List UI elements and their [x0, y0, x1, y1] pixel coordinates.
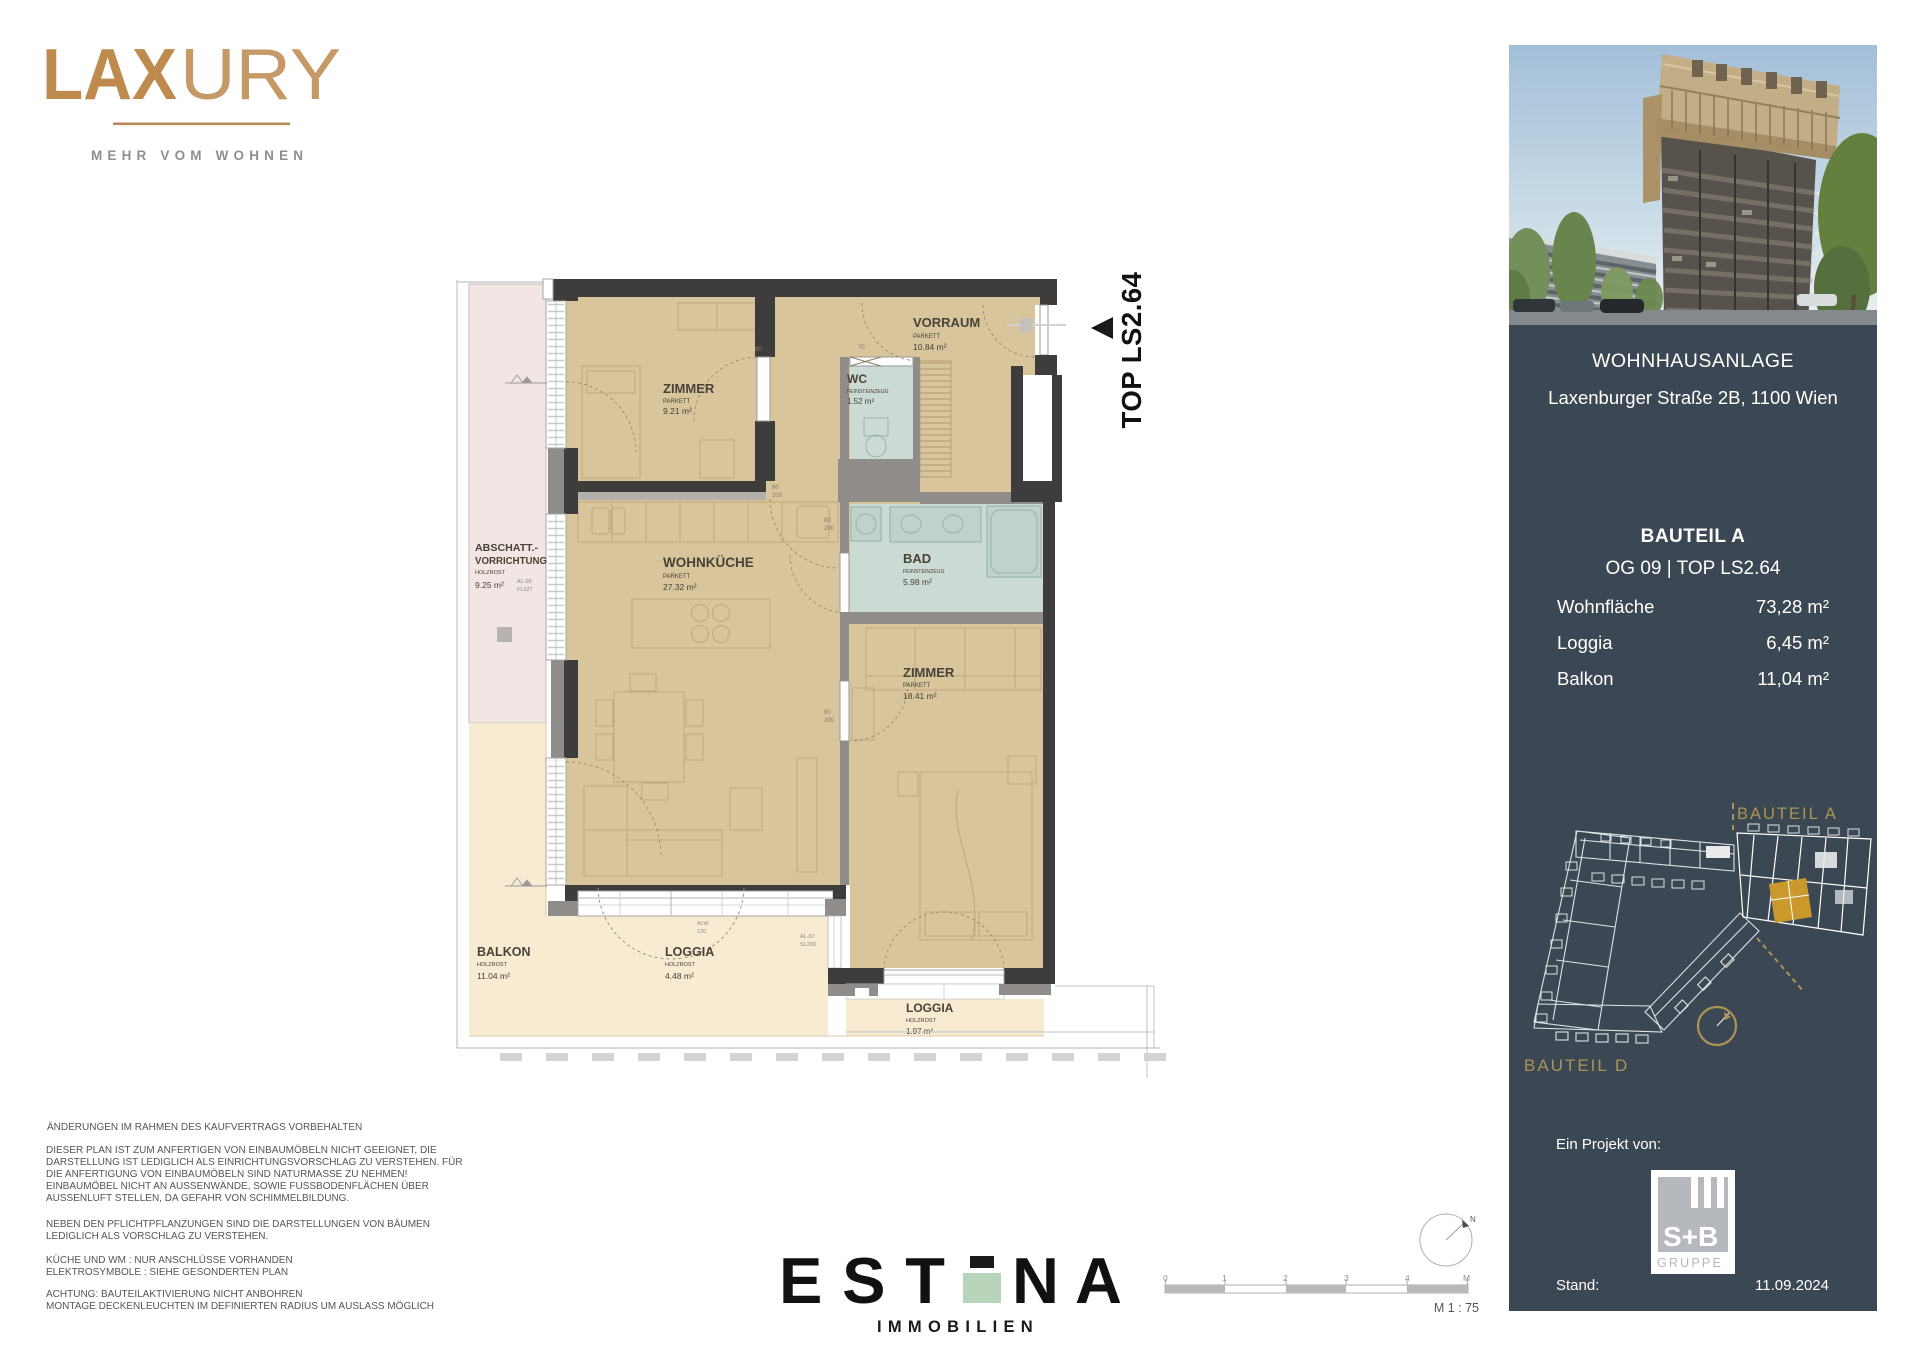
svg-text:80: 80 [772, 485, 779, 491]
svg-text:80: 80 [755, 347, 762, 353]
svg-text:PARKETT: PARKETT [913, 334, 941, 340]
svg-text:ZIMMER: ZIMMER [903, 665, 955, 680]
svg-text:1.52 m²: 1.52 m² [847, 397, 874, 406]
svg-text:11.04 m²: 11.04 m² [477, 971, 510, 981]
svg-text:SL200: SL200 [800, 942, 816, 948]
svg-text:PARKETT: PARKETT [903, 683, 931, 689]
svg-text:DIESER PLAN IST ZUM ANFERTIGEN: DIESER PLAN IST ZUM ANFERTIGEN VON EINBA… [46, 1144, 437, 1156]
svg-text:2: 2 [1283, 1273, 1288, 1283]
svg-text:DIE ANFERTIGUNG VON EINBAUMÖBE: DIE ANFERTIGUNG VON EINBAUMÖBELN SIND NA… [46, 1168, 407, 1180]
svg-text:200: 200 [824, 526, 835, 532]
svg-text:OG 09 | TOP LS2.64: OG 09 | TOP LS2.64 [1606, 558, 1781, 579]
svg-text:80: 80 [824, 518, 831, 524]
svg-text:HOLZROST: HOLZROST [475, 570, 506, 576]
svg-text:WOHNKÜCHE: WOHNKÜCHE [663, 555, 754, 570]
svg-text:9.25 m²: 9.25 m² [475, 580, 504, 590]
svg-text:TOP LS2.64: TOP LS2.64 [1116, 271, 1147, 428]
svg-text:HOLZROST: HOLZROST [665, 962, 696, 968]
svg-text:VORRAUM: VORRAUM [913, 315, 980, 330]
svg-text:AUSSENLUFT STELLEN, DA GEFAHR: AUSSENLUFT STELLEN, DA GEFAHR VON SCHIMM… [46, 1193, 349, 1204]
svg-text:11,04 m²: 11,04 m² [1757, 668, 1829, 689]
svg-text:LEDIGLICH ALS VORSCHLAG ZU VER: LEDIGLICH ALS VORSCHLAG ZU VERSTEHEN. [46, 1231, 268, 1242]
svg-text:DARSTELLUNG IST LEDIGLICH ALS: DARSTELLUNG IST LEDIGLICH ALS EINRICHTUN… [46, 1156, 463, 1168]
svg-text:LOGGIA: LOGGIA [665, 945, 714, 959]
svg-text:11.09.2024: 11.09.2024 [1755, 1277, 1829, 1294]
svg-text:HOLZROST: HOLZROST [477, 962, 508, 968]
svg-text:WC: WC [847, 372, 867, 386]
svg-text:WOHNHAUSANLAGE: WOHNHAUSANLAGE [1592, 350, 1794, 372]
svg-text:27.32 m²: 27.32 m² [663, 582, 697, 592]
svg-text:Loggia: Loggia [1557, 632, 1613, 653]
svg-text:73,28 m²: 73,28 m² [1756, 596, 1829, 617]
svg-text:ACHTUNG: BAUTEILAKTIVIERUNG NI: ACHTUNG: BAUTEILAKTIVIERUNG NICHT ANBOHR… [46, 1289, 303, 1300]
svg-text:M 1 : 75: M 1 : 75 [1434, 1301, 1479, 1315]
svg-text:Balkon: Balkon [1557, 668, 1614, 689]
svg-text:URY: URY [180, 35, 341, 115]
svg-text:KÜCHE UND WM : NUR ANSCHLÜSSE: KÜCHE UND WM : NUR ANSCHLÜSSE VORHANDEN [46, 1254, 293, 1266]
svg-text:Stand:: Stand: [1556, 1277, 1599, 1294]
svg-text:IMMOBILIEN: IMMOBILIEN [877, 1318, 1039, 1336]
svg-text:ABSCHATT.-: ABSCHATT.- [475, 542, 539, 554]
svg-text:BAUTEIL D: BAUTEIL D [1524, 1056, 1629, 1075]
svg-text:MONTAGE DECKENLEUCHTEN IM DEFI: MONTAGE DECKENLEUCHTEN IM DEFINIERTEN RA… [46, 1300, 434, 1312]
svg-text:5.98 m²: 5.98 m² [903, 577, 932, 587]
svg-text:BAUTEIL A: BAUTEIL A [1641, 526, 1746, 547]
svg-text:10.84 m²: 10.84 m² [913, 342, 947, 352]
svg-text:18.41 m²: 18.41 m² [903, 691, 937, 701]
svg-text:LAX: LAX [42, 35, 177, 115]
svg-text:S+B: S+B [1663, 1221, 1718, 1252]
svg-text:ÄNDERUNGEN IM RAHMEN DES KAUFV: ÄNDERUNGEN IM RAHMEN DES KAUFVERTRAGS VO… [47, 1121, 362, 1133]
svg-text:Ein Projekt von:: Ein Projekt von: [1556, 1136, 1661, 1153]
svg-text:200: 200 [824, 718, 835, 724]
svg-text:ZIMMER: ZIMMER [663, 381, 715, 396]
svg-text:NEBEN DEN PFLICHTPFLANZUNGEN S: NEBEN DEN PFLICHTPFLANZUNGEN SIND DIE DA… [46, 1218, 430, 1230]
svg-text:4: 4 [1405, 1273, 1410, 1283]
svg-text:MEHR VOM WOHNEN: MEHR VOM WOHNEN [91, 148, 310, 163]
svg-text:4.48 m²: 4.48 m² [665, 971, 694, 981]
svg-text:EINBAUMÖBEL NICHT AN AUSSENWÄN: EINBAUMÖBEL NICHT AN AUSSENWÄNDE, SOWIE … [46, 1180, 429, 1192]
svg-text:Laxenburger Straße 2B, 1100 Wi: Laxenburger Straße 2B, 1100 Wien [1548, 387, 1838, 408]
svg-text:ALW: ALW [697, 921, 709, 927]
svg-text:BALKON: BALKON [477, 945, 530, 959]
svg-text:ELEKTROSYMBOLE : SIEHE GESONDE: ELEKTROSYMBOLE : SIEHE GESONDERTEN PLAN [46, 1267, 288, 1278]
svg-text:70: 70 [858, 345, 865, 351]
svg-text:200: 200 [772, 493, 783, 499]
svg-text:LOGGIA: LOGGIA [906, 1001, 954, 1015]
svg-text:EST: EST [779, 1244, 959, 1317]
svg-text:6,45 m²: 6,45 m² [1766, 632, 1829, 653]
svg-text:GRUPPE: GRUPPE [1657, 1256, 1723, 1270]
svg-text:0: 0 [1163, 1273, 1168, 1283]
svg-text:Wohnfläche: Wohnfläche [1557, 596, 1654, 617]
svg-text:AL-05: AL-05 [517, 579, 532, 585]
svg-text:90: 90 [824, 710, 831, 716]
svg-text:9.21 m²: 9.21 m² [663, 406, 692, 416]
svg-text:VORRICHTUNG: VORRICHTUNG [475, 555, 547, 567]
svg-text:HOLZROST: HOLZROST [906, 1018, 937, 1024]
svg-text:FL327: FL327 [517, 587, 533, 593]
svg-text:PARKETT: PARKETT [663, 399, 691, 405]
svg-text:1: 1 [1222, 1273, 1227, 1283]
svg-text:120: 120 [697, 929, 706, 935]
svg-text:PARKETT: PARKETT [663, 574, 691, 580]
svg-text:M: M [1463, 1273, 1470, 1283]
svg-text:FEINSTEINZEUG: FEINSTEINZEUG [847, 389, 889, 395]
svg-text:N: N [1470, 1215, 1476, 1224]
svg-text:FEINSTEINZEUG: FEINSTEINZEUG [903, 569, 945, 575]
svg-text:BAD: BAD [903, 551, 931, 566]
svg-text:3: 3 [1344, 1273, 1349, 1283]
svg-text:BAUTEIL A: BAUTEIL A [1737, 805, 1838, 823]
svg-text:AL-07: AL-07 [800, 934, 815, 940]
